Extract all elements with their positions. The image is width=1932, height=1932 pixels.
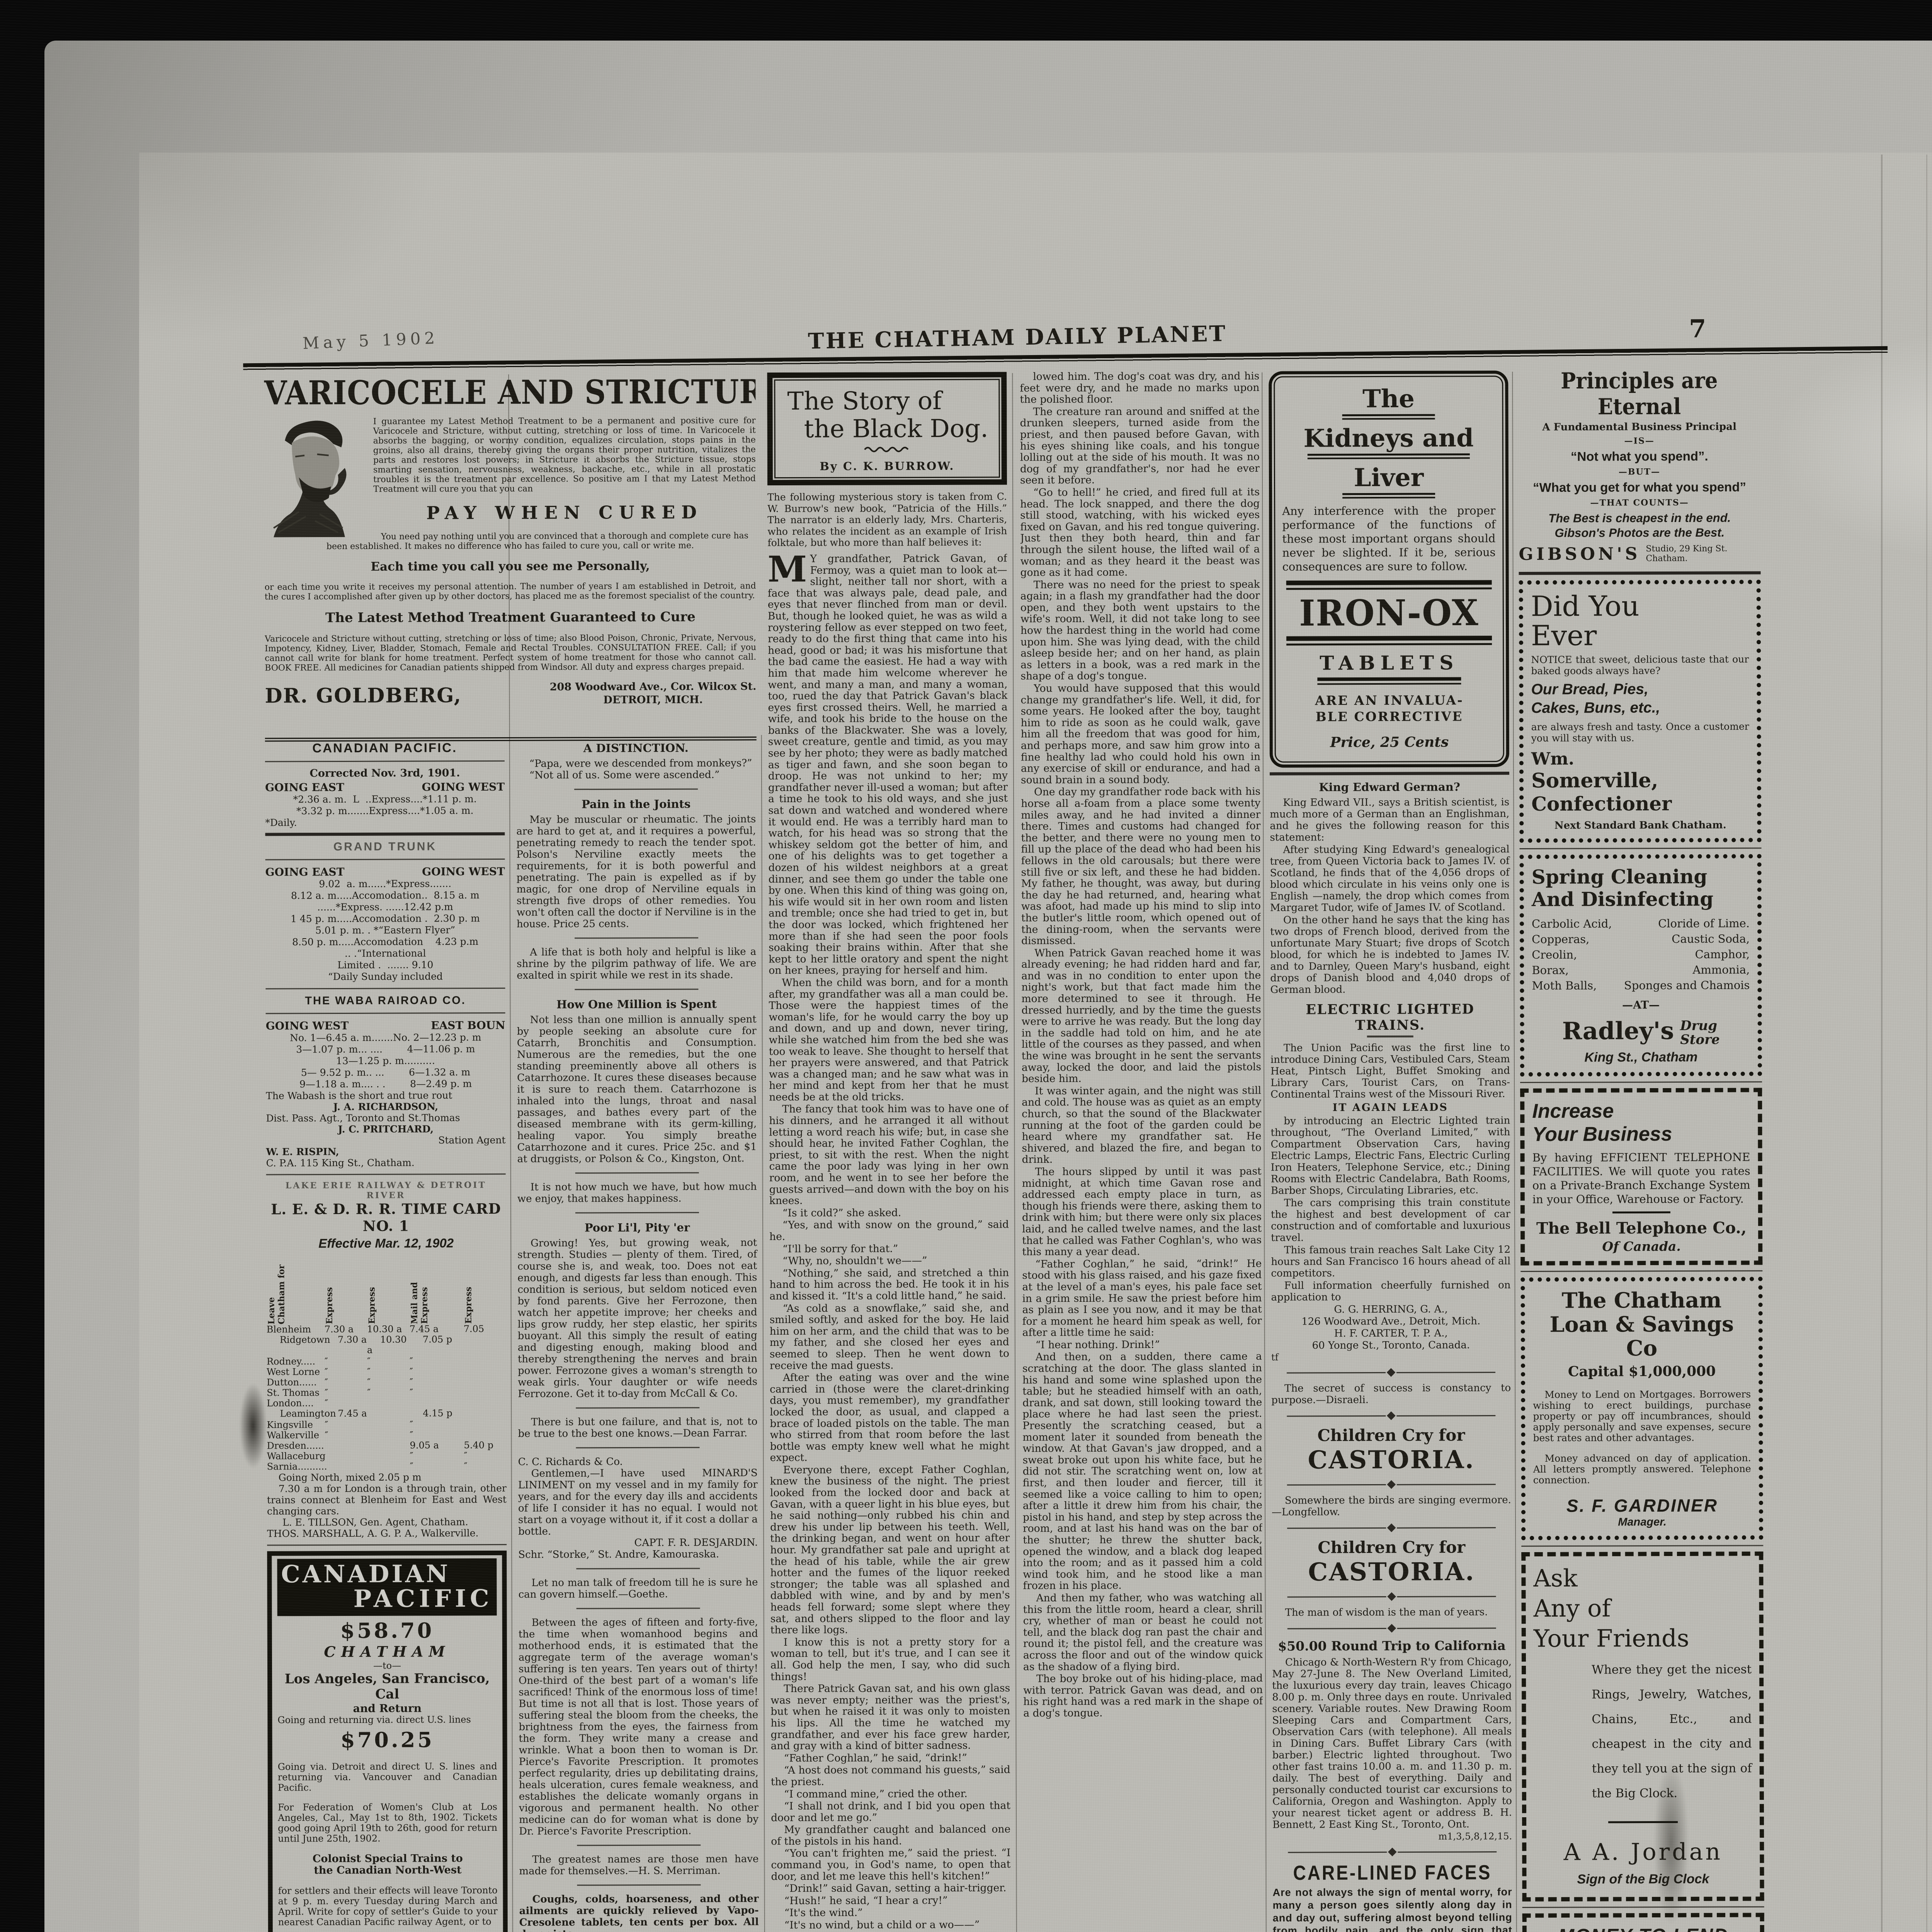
rule-ornament: [1286, 636, 1492, 645]
routing-note: Going and returning via. direct U.S. lin…: [277, 1714, 497, 1725]
care-lined-heading: CARE-LINED FACES: [1272, 1860, 1512, 1885]
contact-line: 60 Yonge St., Toronto, Canada.: [1271, 1339, 1511, 1352]
ad-white-barrister: MONEY TO LEND ON LAND MORTGAGE, ON CHATT…: [1522, 1913, 1765, 1932]
ad-radleys-drug-store: Spring CleaningAnd Disinfecting Carbolic…: [1520, 854, 1762, 1077]
bakery-text: are always fresh and tasty. Once a custo…: [1531, 721, 1749, 743]
timetable-row: 8.12 a. m.....Accomodation.. 8.15 a. m: [265, 889, 505, 902]
rule-ornament: [1286, 580, 1492, 590]
supplies-row: Carbolic Acid,Cloride of Lime.: [1532, 915, 1750, 931]
agent-signature: J. A. RICHARDSON,: [266, 1101, 505, 1113]
story-paragraph: “Is it cold?” she asked.: [769, 1207, 1009, 1219]
column-divider: [1012, 373, 1018, 1932]
story-paragraph: After the eating was over and the wine c…: [770, 1372, 1010, 1464]
story-paragraph: “You can't frighten me,” said the priest…: [771, 1847, 1010, 1882]
printed-content: May 5 1902 THE CHATHAM DAILY PLANET 7 VA…: [0, 0, 1932, 1932]
children-cry-line: Children Cry for: [1271, 1425, 1511, 1445]
doctor-name: DR. GOLDBERG,: [265, 684, 462, 707]
story-title-line: the Black Dog.: [780, 415, 995, 444]
cp-timetable-rows: *2.36 a. m. L ..Express....*1.11 p. m.*3…: [265, 793, 505, 817]
principles-line: “Not what you spend”.: [1519, 449, 1760, 464]
wabash-note: The Wabash is the short and true rout: [266, 1090, 505, 1102]
brief-item: [576, 1447, 700, 1449]
brief-item: Between the ages of fifteen and forty-fi…: [519, 1616, 759, 1837]
story-byline: By C. K. BURROW.: [780, 459, 995, 473]
title-line: And Disinfecting: [1532, 888, 1714, 911]
story-paragraph: The fancy that took him was to have one …: [769, 1103, 1009, 1207]
le-table-row: Kingsville″ ″: [267, 1419, 506, 1430]
agent-address: C. P.A. 115 King St., Chatham.: [266, 1157, 506, 1169]
le-table-row: Wallaceburg ″″: [267, 1451, 507, 1462]
principles-line: “What you get for what you spend”: [1519, 480, 1760, 495]
settlers-note: for settlers and their effects will leav…: [278, 1885, 498, 1927]
diamond-separator: [1287, 1369, 1495, 1376]
going-west-label: GOING WEST: [422, 781, 505, 794]
colonist-line: Colonist Special Trains to: [278, 1853, 497, 1865]
handwritten-date: May 5 1902: [302, 328, 439, 353]
rule-ornament: [1308, 453, 1470, 459]
principles-heading: Principles are Eternal: [1518, 367, 1760, 420]
timetable-row: *2.36 a. m. L ..Express....*1.11 p. m.: [265, 793, 505, 806]
le-note: 7.30 a m for London is a through train, …: [267, 1483, 507, 1517]
cp-timetable-title: CANADIAN PACIFIC.: [265, 740, 505, 756]
cp-corrected-date: Corrected Nov. 3rd, 1901.: [265, 767, 505, 780]
story-paragraph: “I hear nothing. Drink!”: [1022, 1339, 1262, 1351]
gt-timetable-rows: 9.02 a. m......*Express.......8.12 a. m.…: [265, 878, 505, 983]
le-table-headers: Leave Chatham for Express Express Mail a…: [266, 1254, 506, 1325]
article-paragraph: On the other hand he says that the king …: [1270, 914, 1510, 996]
ad-personally-line: Each time you call you see me Personally…: [265, 559, 756, 574]
radleys-name: Radley's: [1562, 1017, 1674, 1045]
title-line: Ask: [1533, 1564, 1577, 1592]
ask-title: AskAny ofYour Friends: [1533, 1563, 1752, 1653]
column-mixed: The Kidneys and Liver Any interference w…: [1269, 371, 1513, 1932]
agent-title: Station Agent: [266, 1134, 505, 1146]
story-paragraph: “It's no wind, but a child or a wo——”: [771, 1919, 1011, 1931]
diamond-separator: [1287, 1593, 1496, 1600]
timetable-row: *3.32 p. m.......Express....*1.05 a. m.: [265, 805, 505, 817]
article-heading: King Edward German?: [1270, 780, 1509, 794]
timetable-row: 5— 9.52 p. m.. ... 6—1.32 a. m: [266, 1066, 505, 1079]
label-word: Drug: [1680, 1018, 1717, 1034]
timetable-row: 3—1.07 p. m... .... 4—11.06 p. m: [266, 1043, 505, 1056]
article-paragraph: The Union Pacific was the first line to …: [1270, 1042, 1510, 1100]
le-header: Express: [463, 1287, 506, 1324]
at-label: —AT—: [1532, 998, 1750, 1011]
title-line: Your Business: [1532, 1123, 1672, 1146]
le-table-row: Leamington7.45 a 4.15 p: [267, 1408, 506, 1419]
story-paragraph: I know this is not a pretty story for a …: [770, 1636, 1010, 1682]
agent-signature: J. C. PRITCHARD,: [266, 1123, 505, 1135]
story-paragraph: lowed him. The dog's coat was dry, and h…: [1020, 371, 1259, 405]
principles-subheading: A Fundamental Business Principal: [1519, 421, 1760, 433]
supplies-row: Creolin,Camphor,: [1532, 946, 1750, 962]
wabash-timetable-title: THE WABA RAIROAD CO.: [265, 994, 505, 1008]
agent-title: Dist. Pass. Agt., Toronto and St.Thomas: [266, 1112, 505, 1124]
bakery-items: Cakes, Buns, etc.,: [1531, 698, 1749, 717]
bakery-text: NOTICE that sweet, delicious taste that …: [1531, 653, 1749, 676]
timetable-row: 9.02 a. m......*Express.......: [265, 878, 505, 890]
doctor-portrait-engraving: [264, 417, 368, 540]
column-story: The Story of the Black Dog. By C. K. BUR…: [767, 372, 1012, 1932]
brief-item: CAPT. F. R. DESJARDIN.: [518, 1537, 758, 1549]
title-line: Increase: [1532, 1100, 1614, 1122]
brief-item: C. C. Richards & Co.: [518, 1456, 758, 1468]
diamond-separator: [1288, 1849, 1497, 1855]
story-paragraph: The creature ran around and sniffed at t…: [1020, 406, 1260, 486]
contact-line: H. F. CARTER, T. P. A.,: [1271, 1327, 1511, 1340]
newspaper-title: THE CHATHAM DAILY PLANET: [786, 320, 1250, 354]
le-effective-date: Effective Mar. 12, 1902: [266, 1236, 506, 1251]
going-east-label: GOING EAST: [265, 866, 345, 879]
story-paragraph: “Why, no, shouldn't we——”: [769, 1255, 1009, 1267]
le-time-card-title: L. E. & D. R. R. TIME CARD NO. 1: [266, 1200, 506, 1235]
rule-ornament: [1612, 1211, 1670, 1213]
big-clock-line: Sign of the Big Clock: [1534, 1871, 1752, 1887]
story-paragraph: “Hush!” he said, “I hear a cry!”: [771, 1895, 1011, 1906]
care-lined-lead: Are not always the sign of mental worry,…: [1273, 1886, 1512, 1932]
quote-filler: The secret of success is constancy to pu…: [1271, 1382, 1511, 1406]
le-header: Mail and Express: [409, 1254, 463, 1324]
brief-item: [577, 1608, 700, 1609]
story-paragraphs: When the child was born, and for a month…: [769, 976, 1011, 1932]
le-table-rows: Blenheim7.30 a10.30 a7.45 a7.05 Ridgetow…: [267, 1324, 507, 1472]
contact-line: 126 Woodward Ave., Detroit, Mich.: [1271, 1315, 1511, 1328]
article-paragraph: by introducing an Electric Lighted train…: [1270, 1115, 1510, 1197]
confectioner-name: Wm.: [1531, 748, 1749, 769]
brief-item: [575, 1172, 699, 1174]
squiggle-ornament: [864, 446, 910, 452]
brief-item: [575, 989, 698, 990]
story-paragraphs: lowed him. The dog's coat was dry, and h…: [1020, 371, 1263, 1719]
brief-item: [577, 1884, 701, 1886]
brief-item: [574, 789, 698, 790]
origin-city: CHATHAM: [277, 1643, 497, 1660]
doctor-address: 208 Woodward Ave., Cor. Wilcox St. DETRO…: [550, 680, 757, 707]
loan-text: Money to Lend on Mortgages. Borrowers wi…: [1533, 1389, 1751, 1443]
article-heading: ELECTRIC LIGHTED TRAINS.: [1270, 1001, 1510, 1034]
story-paragraph: MY grandfather, Patrick Gavan, of Fermoy…: [767, 553, 1008, 976]
supplies-row: Moth Balls,Sponges and Chamois: [1532, 977, 1750, 993]
that-counts-label: —THAT COUNTS—: [1519, 497, 1760, 508]
confectioner-name: Somerville,: [1531, 768, 1749, 792]
loan-text: Money advanced on day of application. Al…: [1533, 1452, 1751, 1485]
manager-name: S. F. GARDINER: [1533, 1495, 1751, 1516]
address-line-2: DETROIT, MICH.: [550, 693, 757, 707]
title-word: Ever: [1531, 619, 1597, 651]
brief-item: Let no man talk of freedom till he is su…: [518, 1577, 758, 1600]
brief-item: There is but one failure, and that is, n…: [518, 1416, 757, 1440]
ad-jordan-jeweler: AskAny ofYour Friends Where they get the…: [1521, 1551, 1764, 1901]
story-paragraph: There was no need for the priest to spea…: [1020, 578, 1260, 682]
gibsons-address: Studio, 29 King St.Chatham.: [1646, 544, 1727, 564]
increase-title: IncreaseYour Business: [1532, 1099, 1750, 1146]
is-label: —IS—: [1519, 435, 1760, 446]
timetable-row: .. .“International: [265, 947, 505, 960]
ad-latest-method-line: The Latest Method Treatment Guaranteed t…: [265, 609, 756, 626]
article-paragraph: Full information cheerfully furnished on…: [1271, 1279, 1510, 1303]
le-agent: THOS. MARSHALL, A. G. P. A., Walkerville…: [267, 1527, 507, 1539]
le-table-row: Ridgetown7.30 a10.30 a7.05 p: [267, 1334, 506, 1356]
story-paragraph: “Father Coghlan,” he said, “drink!” He s…: [1022, 1258, 1262, 1338]
story-paragraph: There Patrick Gavan sat, and his own gla…: [770, 1683, 1010, 1752]
bakery-items: Our Bread, Pies,: [1531, 680, 1749, 699]
le-table-row: Sarnia.......... ″″: [267, 1461, 507, 1472]
supplies-row: Borax,Ammonia,: [1532, 962, 1750, 978]
going-west-label: GOING WEST: [266, 1019, 349, 1032]
le-note: Going North, mixed 2.05 p m: [267, 1471, 507, 1483]
story-paragraph: It was winter again, and the night was s…: [1022, 1085, 1262, 1166]
contact-line: G. G. HERRING, G. A.,: [1271, 1303, 1511, 1316]
jordan-name: A A. Jordan: [1534, 1838, 1752, 1866]
kidneys-title: The: [1282, 385, 1495, 413]
colonist-line: the Canadian North-West: [278, 1864, 497, 1876]
heading-rule: [1367, 1036, 1413, 1037]
agent-signature: W. E. RISPIN,: [266, 1146, 506, 1158]
article-paragraph: King Edward VII., says a British scienti…: [1270, 796, 1509, 844]
price-line: Price, 25 Cents: [1283, 734, 1496, 750]
ad-varicocele-stricture: VARICOCELE AND STRICTURE I guarantee my …: [264, 376, 756, 742]
to-label: —to—: [277, 1660, 497, 1671]
brief-item: [575, 937, 698, 939]
did-you-ever-title: Did YouEver: [1531, 591, 1749, 650]
wabash-timetable-rows: No. 1—6.45 a. m.......No. 2—12.23 p. m3—…: [266, 1032, 505, 1090]
brief-item: Growing! Yes, but growing weak, not stre…: [517, 1237, 757, 1400]
brief-item: Coughs, colds, hoarseness, and other ail…: [519, 1893, 759, 1932]
title-line: Spring Cleaning: [1532, 865, 1708, 888]
le-table-row: London....″: [267, 1398, 506, 1409]
timetable-row: No. 1—6.45 a. m.......No. 2—12.23 p. m: [266, 1032, 505, 1044]
drug-store-label: DrugStore: [1680, 1017, 1720, 1047]
timetable-row: ......*Express. ......12.42 p.m: [265, 901, 505, 913]
federation-note: For Federation of Women's Club at Los An…: [278, 1802, 497, 1844]
address-line: Chatham.: [1646, 554, 1687, 563]
money-to-lend-title: MONEY TO LEND: [1534, 1924, 1752, 1932]
spring-cleaning-title: Spring CleaningAnd Disinfecting: [1532, 865, 1750, 910]
corrective-line-2: BLE CORRECTIVE: [1316, 709, 1463, 724]
it-again-leads: IT AGAIN LEADS: [1270, 1101, 1510, 1114]
king-edward-article: King Edward VII., says a British scienti…: [1270, 796, 1510, 996]
kidneys-title: Liver: [1282, 464, 1495, 492]
brief-item: A DISTINCTION.: [516, 741, 756, 755]
timetable-row: “Daily Sunday included: [265, 971, 505, 983]
diamond-separator: [1287, 1625, 1496, 1631]
castoria-logotype: CASTORIA.: [1272, 1557, 1511, 1587]
label-word: Store: [1680, 1032, 1720, 1048]
supplies-row: Copperas,Caustic Soda,: [1532, 931, 1750, 947]
le-table-row: Rodney.....″″″: [267, 1356, 506, 1367]
brief-item: The greatest names are those men have ma…: [519, 1853, 759, 1877]
story-intro: The following mysterious story is taken …: [767, 491, 1007, 549]
column-timetables: CANADIAN PACIFIC. Corrected Nov. 3rd, 19…: [265, 738, 510, 1932]
routing-note-2: Going via. Detroit and direct U. S. line…: [278, 1761, 497, 1793]
title-line: Your Friends: [1534, 1624, 1689, 1653]
title-line: Any of: [1534, 1594, 1611, 1622]
rule-ornament: [1317, 677, 1461, 685]
fare-amount: $70.25: [277, 1727, 497, 1752]
ad-iron-ox: The Kidneys and Liver Any interference w…: [1269, 371, 1509, 768]
principles-line: The Best is cheapest in the end.: [1519, 510, 1760, 526]
loan-company-title: The ChathamLoan & Savings Co: [1532, 1288, 1750, 1360]
diamond-separator: [1287, 1412, 1495, 1419]
timetable-row: 1 45 p. m.....Accomodation . 2.30 p. m: [265, 913, 505, 925]
ad-tag: m1,3,5,8,12,15.: [1272, 1831, 1512, 1842]
castoria-logotype: CASTORIA.: [1272, 1445, 1511, 1475]
story-paragraph: The boy broke out of his hiding-place, m…: [1023, 1673, 1263, 1719]
newspaper-scan-photo: { "masthead":{"date_note":"May 5 1902","…: [0, 0, 1932, 1932]
le-table-row: Walkerville″ ″: [267, 1430, 506, 1441]
brief-items: A DISTINCTION.“Papa, were we descended f…: [516, 741, 759, 1932]
timetable-row: Limited . ....... 9.10: [265, 959, 505, 971]
story-paragraph: “Drink!” said Gavan, setting a hair-trig…: [771, 1883, 1010, 1895]
brief-item: [576, 1407, 699, 1409]
le-header: Express: [324, 1287, 367, 1324]
gibsons-name: GIBSON'S: [1519, 544, 1640, 564]
rule-ornament: [1608, 1821, 1678, 1823]
brief-item: “Not all of us. Some were ascended.”: [516, 769, 756, 781]
of-canada-line: Of Canada.: [1532, 1238, 1750, 1254]
ad-headline: VARICOCELE AND STRICTURE: [264, 376, 755, 410]
title-line: Loan & Savings Co: [1549, 1311, 1734, 1361]
le-table-row: West Lorne″″″: [267, 1366, 506, 1378]
confectioner-address: Next Standard Bank Chatham.: [1531, 819, 1749, 831]
kidneys-title: Kidneys and: [1282, 425, 1495, 452]
story-paragraph: And then my father, who was watching all…: [1023, 1592, 1263, 1673]
ad-gibsons-photos: Principles are Eternal A Fundamental Bus…: [1518, 370, 1760, 575]
iron-ox-logotype: IRON-OX: [1282, 592, 1496, 634]
story-paragraph: “Go to hell!” he cried, and fired full a…: [1020, 486, 1260, 578]
ad-tag: tf: [1271, 1351, 1511, 1363]
story-title-box: The Story of the Black Dog. By C. K. BUR…: [767, 372, 1007, 485]
story-paragraph: “As cold as a snowflake,” said she, and …: [770, 1302, 1009, 1371]
principles-line: Gibson's Photos are the Best.: [1519, 525, 1760, 541]
but-label: —BUT—: [1519, 466, 1760, 477]
article-paragraph: This famous train reaches Salt Lake City…: [1271, 1244, 1510, 1279]
bell-company-name: The Bell Telephone Co.,: [1532, 1218, 1750, 1237]
going-east-label: GOING EAST: [265, 781, 344, 794]
story-paragraph: “A host does not command his guests,” sa…: [771, 1764, 1010, 1788]
column-briefs: A DISTINCTION.“Papa, were we descended f…: [516, 737, 759, 1932]
timetable-row: 9—1.18 a. m.... . . 8—2.49 p. m: [266, 1078, 505, 1090]
ad-bell-telephone: IncreaseYour Business By having EFFICIEN…: [1520, 1088, 1762, 1265]
le-table-row: Dutton......″″″: [267, 1377, 506, 1388]
tablets-label: TABLETS: [1282, 651, 1496, 674]
article-paragraph: After studying King Edward's genealogica…: [1270, 844, 1509, 914]
le-header: Express: [367, 1287, 409, 1324]
going-west-label: GOING WEST: [422, 865, 505, 878]
brief-item: [576, 1568, 700, 1570]
diamond-separator: [1287, 1524, 1496, 1531]
telephone-text: By having EFFICIENT TELEPHONE FACILITIES…: [1532, 1150, 1750, 1206]
corrective-line-1: ARE AN INVALUA-: [1315, 692, 1464, 708]
diamond-separator: [1287, 1481, 1496, 1488]
timetable-row: 5.01 p. m. . *“Eastern Flyer”: [265, 924, 505, 937]
brief-item: [577, 1845, 701, 1846]
cp-banner-word: PACIFIC: [281, 1586, 493, 1611]
gt-timetable-title: GRAND TRUNK: [265, 840, 505, 854]
le-table-row: St. Thomas″″″: [267, 1387, 506, 1398]
story-paragraph: The hours slipped by until it was past m…: [1022, 1166, 1262, 1258]
jeweler-text: Where they get the nicest Rings, Jewelry…: [1534, 1657, 1752, 1806]
story-paragraph: “Nothing,” she said, and stretched a thi…: [769, 1267, 1009, 1302]
radleys-address: King St., Chatham: [1532, 1049, 1750, 1065]
title-word: Did You: [1531, 590, 1639, 622]
quote-filler: The man of wisdom is the man of years.: [1272, 1606, 1512, 1619]
brief-item: Not less than one million is annually sp…: [517, 1014, 757, 1165]
column-divider: [761, 735, 767, 1932]
ad-latest-method-text: Varicocele and Stricture without cutting…: [265, 633, 756, 673]
brief-item: A life that is both holy and helpful is …: [517, 946, 756, 981]
le-header: Leave Chatham for: [266, 1255, 324, 1324]
story-paragraph: You would have supposed that this would …: [1020, 682, 1260, 786]
story-title-line: The Story of: [779, 388, 994, 415]
story-paragraph: “I shall not drink, and I bid you open t…: [771, 1800, 1010, 1824]
story-paragraph: “I'll be sorry for that.”: [769, 1243, 1009, 1255]
east-bound-label: EAST BOUN: [431, 1019, 505, 1032]
brief-item: Schr. “Storke,” St. Andre, Kamouraska.: [518, 1548, 758, 1561]
le-table-row: Dresden...... 9.05 a5.40 p: [267, 1440, 506, 1451]
story-paragraph: “Yes, and with snow on the ground,” said…: [769, 1219, 1009, 1243]
column-ads: Principles are Eternal A Fundamental Bus…: [1518, 370, 1765, 1932]
brief-item: Poor Li'l, Pity 'er: [517, 1221, 757, 1235]
cp-banner: CANADIAN PACIFIC: [277, 1558, 497, 1616]
confectioner-name: Confectioner: [1531, 792, 1749, 815]
kidneys-text: Any interference with the proper perform…: [1282, 503, 1495, 573]
story-paragraph: When the child was born, and for a month…: [769, 976, 1009, 1103]
brief-item: It is not how much we have, but how much…: [517, 1181, 757, 1205]
address-line: Studio, 29 King St.: [1646, 544, 1727, 554]
story-text: Y grandfather, Patrick Gavan, of Fermoy,…: [768, 552, 1009, 976]
drop-cap: M: [767, 553, 810, 583]
capital-line: Capital $1,000,000: [1533, 1363, 1751, 1379]
story-paragraph: “I command mine,” cried the other.: [771, 1788, 1010, 1800]
story-paragraph: When Patrick Gavan reached home it was a…: [1021, 947, 1261, 1085]
rule-ornament: [1342, 493, 1435, 499]
manager-title: Manager.: [1533, 1515, 1751, 1529]
supplies-list: Carbolic Acid,Cloride of Lime.Copperas,C…: [1532, 915, 1750, 993]
children-cry-line: Children Cry for: [1272, 1537, 1511, 1557]
column-divider: [1512, 372, 1518, 1932]
rule-ornament: [1342, 414, 1435, 420]
ad-personally-text: or each time you write it receives my pe…: [265, 581, 756, 602]
cp-daily-note: *Daily.: [265, 816, 505, 828]
column-story-continued: lowed him. The dog's coat was dry, and h…: [1020, 371, 1265, 1932]
story-paragraph: And then, on a sudden, there came a scra…: [1022, 1351, 1263, 1592]
address-line-1: 208 Woodward Ave., Cor. Wilcox St.: [550, 680, 757, 694]
california-text: Chicago & North-Western R'y from Chicago…: [1272, 1656, 1512, 1831]
brief-item: “Papa, were we descended from monkeys?”: [516, 757, 756, 770]
destination: Los Angeles, San Francisco, Cal: [277, 1671, 497, 1702]
story-paragraph: Everyone there, except Father Coghlan, k…: [770, 1464, 1010, 1636]
and-return: and Return: [277, 1702, 497, 1715]
page-number: 7: [1689, 315, 1706, 344]
quote-filler: Somewhere the birds are singing evermore…: [1272, 1494, 1511, 1518]
story-paragraph: One day my grandfather rode back with hi…: [1021, 786, 1261, 947]
le-table-row: Blenheim7.30 a10.30 a7.45 a7.05: [267, 1324, 506, 1335]
story-paragraph: “It's the wind.”: [771, 1907, 1011, 1919]
story-paragraph: “Father Coghlan,” he said, “drink!”: [771, 1752, 1010, 1764]
fare-amount: $58.70: [277, 1618, 497, 1643]
lake-erie-pre-title: LAKE ERIE RAILWAY & DETROIT RIVER: [266, 1180, 506, 1201]
ad-canadian-pacific-fares: CANADIAN PACIFIC $58.70 CHATHAM —to— Los…: [267, 1551, 508, 1932]
ad-somerville-confectioner: Did YouEver NOTICE that sweet, delicious…: [1519, 580, 1762, 843]
ad-chatham-loan-savings: The ChathamLoan & Savings Co Capital $1,…: [1520, 1277, 1763, 1540]
brief-item: Pain in the Joints: [516, 797, 756, 811]
story-paragraph: My grandfather caught and balanced one o…: [771, 1824, 1010, 1847]
california-heading: $50.00 Round Trip to California: [1272, 1638, 1512, 1654]
article-paragraph: The cars comprising this train constitut…: [1271, 1197, 1510, 1244]
timetable-row: 8.50 p. m.....Accomodation 4.23 p.m: [265, 936, 505, 948]
corrective-line: ARE AN INVALUA-BLE CORRECTIVE: [1282, 692, 1496, 725]
